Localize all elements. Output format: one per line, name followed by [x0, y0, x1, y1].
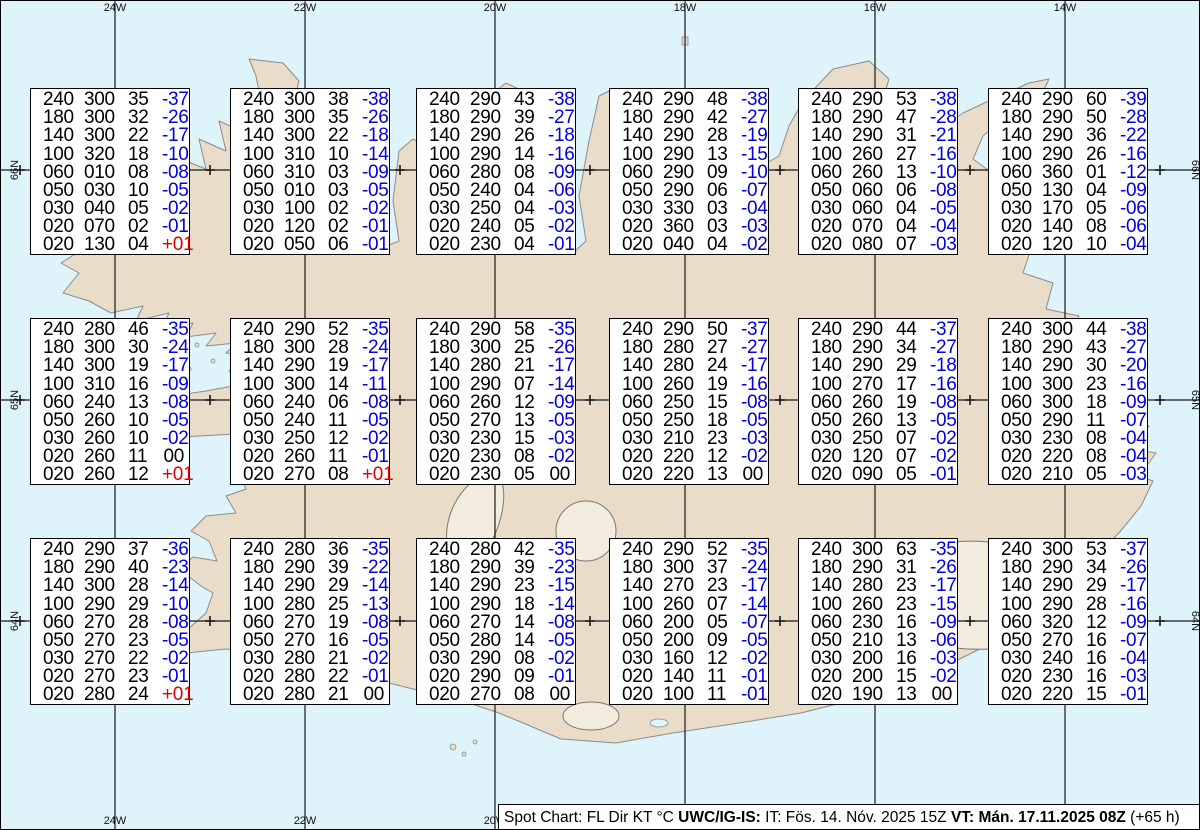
- temp-value: -17: [162, 356, 189, 375]
- temp-value: -15: [741, 145, 768, 164]
- spot-row: 10029026-16: [989, 145, 1147, 163]
- fl-value: 020: [43, 465, 84, 484]
- fl-value: 100: [622, 595, 663, 614]
- spot-row: 05003010-05: [31, 181, 189, 199]
- temp-value: 00: [548, 685, 570, 704]
- temp-value: -02: [741, 235, 768, 254]
- temp-value: -06: [548, 181, 575, 200]
- fl-value: 060: [1001, 163, 1042, 182]
- dir-value: 240: [470, 181, 514, 200]
- dir-value: 230: [470, 465, 514, 484]
- temp-value: 00: [362, 685, 384, 704]
- spot-row: 02024005-02: [417, 217, 575, 235]
- dir-value: 200: [663, 631, 707, 650]
- dir-value: 260: [852, 411, 896, 430]
- dir-value: 270: [852, 375, 896, 394]
- temp-value: +01: [162, 235, 193, 254]
- dir-value: 260: [852, 163, 896, 182]
- spot-row: 05006006-08: [799, 181, 957, 199]
- temp-value: -04: [1120, 235, 1147, 254]
- dir-value: 190: [852, 685, 896, 704]
- spot-row: 03010002-02: [231, 199, 389, 217]
- lat-label-left: 66N: [9, 158, 21, 182]
- spot-row: 05029011-07: [989, 411, 1147, 429]
- spot-row: 02010011-01: [610, 685, 768, 703]
- status-text-segment: IT: Fös. 14. Nóv. 2025 15Z: [761, 809, 951, 827]
- lat-label-right: 66N: [1189, 158, 1200, 182]
- spot-data-box: 24030044-3818029043-2714029030-201003002…: [988, 318, 1148, 485]
- spot-row: 06026013-10: [799, 163, 957, 181]
- spot-row: 14028024-17: [610, 356, 768, 374]
- temp-value: -17: [548, 356, 575, 375]
- kt-value: 10: [328, 145, 362, 164]
- fl-value: 060: [622, 613, 663, 632]
- spot-row: 14029029-18: [799, 356, 957, 374]
- spot-row: 02027023-01: [31, 667, 189, 685]
- fl-value: 050: [811, 631, 852, 650]
- spot-row: 14028021-17: [417, 356, 575, 374]
- spot-row: 03024016-04: [989, 649, 1147, 667]
- lon-label-bottom: 22W: [291, 815, 319, 827]
- fl-value: 050: [622, 411, 663, 430]
- fl-value: 140: [622, 576, 663, 595]
- fl-value: 020: [811, 685, 852, 704]
- fl-value: 050: [43, 411, 84, 430]
- dir-value: 290: [470, 595, 514, 614]
- dir-value: 290: [470, 126, 514, 145]
- fl-value: 050: [43, 181, 84, 200]
- dir-value: 100: [663, 685, 707, 704]
- kt-value: 28: [1086, 595, 1120, 614]
- spot-data-box: 24029052-3518030028-2414029019-171003001…: [230, 318, 390, 485]
- spot-data-box: 24029048-3818029042-2714029028-191002901…: [609, 88, 769, 255]
- spot-row: 18029039-23: [417, 558, 575, 576]
- spot-row: 10026007-14: [610, 595, 768, 613]
- dir-value: 270: [284, 465, 328, 484]
- spot-data-box: 24029050-3718028027-2714028024-171002601…: [609, 318, 769, 485]
- spot-row: 02007002-01: [31, 217, 189, 235]
- spot-data-box: 24028046-3518030030-2414030019-171003101…: [30, 318, 190, 485]
- dir-value: 270: [663, 576, 707, 595]
- fl-value: 050: [1001, 411, 1042, 430]
- spot-data-box: 24030063-3518029031-2614028023-171002602…: [798, 538, 958, 705]
- temp-value: -09: [1120, 613, 1147, 632]
- kt-value: 22: [128, 126, 162, 145]
- temp-value: 00: [548, 465, 570, 484]
- dir-value: 060: [852, 181, 896, 200]
- fl-value: 140: [43, 576, 84, 595]
- kt-value: 07: [896, 235, 930, 254]
- spot-row: 18029043-27: [989, 338, 1147, 356]
- temp-value: -14: [362, 576, 389, 595]
- dir-value: 300: [84, 356, 128, 375]
- fl-value: 100: [429, 595, 470, 614]
- kt-value: 09: [707, 631, 741, 650]
- lon-label-top: 22W: [291, 2, 319, 14]
- kt-value: 08: [514, 163, 548, 182]
- temp-value: -14: [362, 145, 389, 164]
- temp-value: -18: [362, 126, 389, 145]
- spot-row: 02023008-02: [417, 447, 575, 465]
- spot-row: 14029031-21: [799, 126, 957, 144]
- temp-value: -05: [362, 631, 389, 650]
- spot-row: 24030035-37: [31, 90, 189, 108]
- spot-row: 02007004-04: [799, 217, 957, 235]
- spot-row: 14029030-20: [989, 356, 1147, 374]
- dir-value: 260: [84, 465, 128, 484]
- spot-row: 02014011-01: [610, 667, 768, 685]
- fl-value: 050: [1001, 181, 1042, 200]
- spot-row: 14028023-17: [799, 576, 957, 594]
- spot-row: 18030030-24: [31, 338, 189, 356]
- kt-value: 14: [514, 613, 548, 632]
- spot-row: 18029039-22: [231, 558, 389, 576]
- fl-value: 140: [622, 126, 663, 145]
- dir-value: 360: [1042, 163, 1086, 182]
- kt-value: 25: [328, 595, 362, 614]
- spot-row: 06023016-09: [799, 613, 957, 631]
- temp-value: -14: [162, 576, 189, 595]
- kt-value: 23: [1086, 375, 1120, 394]
- spot-row: 24029048-38: [610, 90, 768, 108]
- fl-value: 100: [429, 145, 470, 164]
- dir-value: 290: [84, 595, 128, 614]
- spot-row: 03033003-04: [610, 199, 768, 217]
- temp-value: -03: [930, 235, 957, 254]
- kt-value: 26: [1086, 145, 1120, 164]
- temp-value: -10: [741, 163, 768, 182]
- dir-value: 300: [1042, 375, 1086, 394]
- spot-row: 14029019-17: [231, 356, 389, 374]
- spot-row: 24029044-37: [799, 320, 957, 338]
- temp-value: -08: [162, 163, 189, 182]
- kt-value: 11: [707, 685, 741, 704]
- kt-value: 10: [128, 411, 162, 430]
- dir-value: 280: [284, 685, 328, 704]
- spot-row: 02023016-03: [989, 667, 1147, 685]
- fl-value: 050: [243, 631, 284, 650]
- fl-value: 060: [811, 163, 852, 182]
- spot-row: 18029031-26: [799, 558, 957, 576]
- temp-value: -15: [548, 576, 575, 595]
- kt-value: 13: [707, 465, 741, 484]
- spot-row: 14029023-15: [417, 576, 575, 594]
- temp-value: -03: [1120, 465, 1147, 484]
- temp-value: -17: [741, 576, 768, 595]
- temp-value: -09: [930, 613, 957, 632]
- kt-value: 21: [514, 356, 548, 375]
- dir-value: 280: [470, 631, 514, 650]
- kt-value: 15: [1086, 685, 1120, 704]
- dir-value: 010: [284, 181, 328, 200]
- kt-value: 12: [128, 465, 162, 484]
- kt-value: 27: [896, 145, 930, 164]
- spot-row: 0202802100: [231, 685, 389, 703]
- fl-value: 100: [1001, 145, 1042, 164]
- dir-value: 120: [1042, 235, 1086, 254]
- fl-value: 140: [1001, 356, 1042, 375]
- spot-row: 18029039-27: [417, 108, 575, 126]
- spot-row: 05024011-05: [231, 411, 389, 429]
- temp-value: -16: [548, 145, 575, 164]
- spot-row: 06025015-08: [610, 393, 768, 411]
- kt-value: 16: [1086, 631, 1120, 650]
- temp-value: -01: [548, 235, 575, 254]
- kt-value: 01: [1086, 163, 1120, 182]
- kt-value: 19: [896, 393, 930, 412]
- dir-value: 300: [1042, 393, 1086, 412]
- fl-value: 050: [43, 631, 84, 650]
- spot-row: 02026012+01: [31, 465, 189, 483]
- spot-row: 06026019-08: [799, 393, 957, 411]
- spot-row: 10032018-10: [31, 145, 189, 163]
- fl-value: 060: [243, 613, 284, 632]
- spot-row: 05029006-07: [610, 181, 768, 199]
- spot-row: 18030032-26: [31, 108, 189, 126]
- fl-value: 100: [622, 145, 663, 164]
- spot-row: 18029034-27: [799, 338, 957, 356]
- kt-value: 16: [128, 375, 162, 394]
- temp-value: -08: [362, 393, 389, 412]
- kt-value: 04: [128, 235, 162, 254]
- dir-value: 210: [1042, 465, 1086, 484]
- fl-value: 100: [429, 375, 470, 394]
- spot-row: 06031003-09: [231, 163, 389, 181]
- spot-row: 02012010-04: [989, 235, 1147, 253]
- dir-value: 300: [84, 576, 128, 595]
- spot-row: 06028008-09: [417, 163, 575, 181]
- kt-value: 19: [128, 356, 162, 375]
- fl-value: 140: [1001, 576, 1042, 595]
- spot-data-box: 24030038-3818030035-2614030022-181003101…: [230, 88, 390, 255]
- fl-value: 050: [429, 181, 470, 200]
- dir-value: 270: [84, 613, 128, 632]
- fl-value: 100: [243, 595, 284, 614]
- dir-value: 010: [84, 163, 128, 182]
- temp-value: -18: [930, 356, 957, 375]
- spot-row: 18029047-28: [799, 108, 957, 126]
- spot-row: 06027019-08: [231, 613, 389, 631]
- kt-value: 11: [1086, 411, 1120, 430]
- fl-value: 050: [429, 411, 470, 430]
- temp-value: -01: [741, 685, 768, 704]
- kt-value: 04: [707, 235, 741, 254]
- kt-value: 04: [514, 181, 548, 200]
- spot-row: 0202201300: [610, 465, 768, 483]
- fl-value: 020: [622, 685, 663, 704]
- dir-value: 310: [84, 375, 128, 394]
- spot-row: 0202601100: [31, 447, 189, 465]
- kt-value: 14: [514, 631, 548, 650]
- spot-row: 14030019-17: [31, 356, 189, 374]
- spot-data-box: 24029037-3618029040-2314030028-141002902…: [30, 538, 190, 705]
- spot-row: 02021005-03: [989, 465, 1147, 483]
- kt-value: 14: [514, 145, 548, 164]
- fl-value: 100: [811, 375, 852, 394]
- dir-value: 270: [470, 613, 514, 632]
- temp-value: -17: [930, 576, 957, 595]
- spot-row: 02004004-02: [610, 235, 768, 253]
- temp-value: -01: [362, 235, 389, 254]
- fl-value: 020: [429, 235, 470, 254]
- dir-value: 260: [852, 393, 896, 412]
- temp-value: -09: [362, 163, 389, 182]
- spot-row: 18030028-24: [231, 338, 389, 356]
- kt-value: 29: [896, 356, 930, 375]
- kt-value: 05: [1086, 465, 1120, 484]
- temp-value: -08: [930, 393, 957, 412]
- spot-row: 03028021-02: [231, 649, 389, 667]
- fl-value: 020: [243, 465, 284, 484]
- dir-value: 220: [1042, 685, 1086, 704]
- fl-value: 060: [43, 393, 84, 412]
- lat-label-left: 64N: [9, 609, 21, 633]
- spot-row: 02020015-02: [799, 667, 957, 685]
- spot-row: 14029026-18: [417, 126, 575, 144]
- dir-value: 260: [84, 411, 128, 430]
- spot-row: 05026013-05: [799, 411, 957, 429]
- kt-value: 14: [328, 375, 362, 394]
- spot-row: 24029050-37: [610, 320, 768, 338]
- spot-row: 18030035-26: [231, 108, 389, 126]
- kt-value: 18: [514, 595, 548, 614]
- temp-value: -20: [1120, 356, 1147, 375]
- kt-value: 05: [896, 465, 930, 484]
- fl-value: 060: [811, 393, 852, 412]
- spot-row: 02023004-01: [417, 235, 575, 253]
- dir-value: 090: [852, 465, 896, 484]
- kt-value: 23: [896, 595, 930, 614]
- lon-label-top: 20W: [481, 2, 509, 14]
- kt-value: 19: [328, 613, 362, 632]
- spot-row: 14029028-19: [610, 126, 768, 144]
- spot-row: 03006004-05: [799, 199, 957, 217]
- fl-value: 020: [429, 685, 470, 704]
- kt-value: 29: [328, 576, 362, 595]
- temp-value: +01: [162, 685, 193, 704]
- spot-row: 06036001-12: [989, 163, 1147, 181]
- spot-data-box: 24029060-3918029050-2814029036-221002902…: [988, 88, 1148, 255]
- temp-value: -12: [1120, 163, 1147, 182]
- kt-value: 19: [328, 356, 362, 375]
- dir-value: 040: [663, 235, 707, 254]
- status-bar: Spot Chart: FL Dir KT °C UWC/IG-IS: IT: …: [498, 804, 1200, 830]
- spot-row: 03023008-04: [989, 429, 1147, 447]
- fl-value: 100: [43, 375, 84, 394]
- dir-value: 290: [284, 576, 328, 595]
- fl-value: 140: [429, 126, 470, 145]
- kt-value: 12: [1086, 613, 1120, 632]
- fl-value: 020: [811, 465, 852, 484]
- spot-row: 24029053-38: [799, 90, 957, 108]
- dir-value: 300: [84, 126, 128, 145]
- spot-row: 14030022-18: [231, 126, 389, 144]
- status-text-segment: VT: Mán. 17.11.2025 08Z: [951, 809, 1126, 827]
- dir-value: 290: [852, 356, 896, 375]
- spot-data-box: 24028042-3518029039-2314029023-151002901…: [416, 538, 576, 705]
- spot-row: 18030025-26: [417, 338, 575, 356]
- kt-value: 31: [896, 126, 930, 145]
- status-text-segment: Spot Chart: FL Dir KT °C: [504, 809, 678, 827]
- kt-value: 23: [896, 576, 930, 595]
- kt-value: 18: [128, 145, 162, 164]
- kt-value: 13: [896, 631, 930, 650]
- spot-row: 03004005-02: [31, 199, 189, 217]
- vestmannaeyjar-island: [473, 740, 477, 744]
- spot-row: 02027008+01: [231, 465, 389, 483]
- kt-value: 06: [896, 181, 930, 200]
- spot-row: 03016012-02: [610, 649, 768, 667]
- kt-value: 21: [328, 685, 362, 704]
- temp-value: -13: [362, 595, 389, 614]
- spot-row: 0201901300: [799, 685, 957, 703]
- spot-row: 02022012-02: [610, 447, 768, 465]
- temp-value: -07: [1120, 631, 1147, 650]
- spot-row: 18030037-24: [610, 558, 768, 576]
- temp-value: -14: [548, 595, 575, 614]
- temp-value: -08: [548, 613, 575, 632]
- fl-value: 020: [622, 235, 663, 254]
- dir-value: 220: [663, 465, 707, 484]
- spot-data-box: 24030053-3718029034-2614029029-171002902…: [988, 538, 1148, 705]
- temp-value: -09: [1120, 393, 1147, 412]
- dir-value: 290: [663, 163, 707, 182]
- kt-value: 07: [707, 595, 741, 614]
- spot-data-box: 24029053-3818029047-2814029031-211002602…: [798, 88, 958, 255]
- temp-value: -17: [362, 356, 389, 375]
- spot-row: 0202700800: [417, 685, 575, 703]
- spot-row: 10030023-16: [989, 375, 1147, 393]
- spot-row: 18029034-26: [989, 558, 1147, 576]
- dir-value: 290: [663, 126, 707, 145]
- temp-value: -16: [1120, 145, 1147, 164]
- spot-row: 10026023-15: [799, 595, 957, 613]
- spot-row: 10031010-14: [231, 145, 389, 163]
- spot-row: 02012007-02: [799, 447, 957, 465]
- spot-row: 03025004-03: [417, 199, 575, 217]
- kt-value: 28: [707, 126, 741, 145]
- fl-value: 140: [811, 356, 852, 375]
- dir-value: 320: [84, 145, 128, 164]
- spot-row: 05020009-05: [610, 631, 768, 649]
- fl-value: 050: [811, 181, 852, 200]
- spot-row: 05027016-05: [231, 631, 389, 649]
- myrdalsjokull-glacier: [563, 702, 619, 730]
- kt-value: 06: [328, 235, 362, 254]
- spot-row: 10026027-16: [799, 145, 957, 163]
- spot-row: 05028014-05: [417, 631, 575, 649]
- lon-label-top: 18W: [671, 2, 699, 14]
- temp-value: -05: [362, 411, 389, 430]
- fl-value: 060: [811, 613, 852, 632]
- temp-value: -07: [1120, 411, 1147, 430]
- fl-value: 050: [243, 411, 284, 430]
- dir-value: 260: [852, 595, 896, 614]
- spot-row: 10026019-16: [610, 375, 768, 393]
- spot-row: 02028022-01: [231, 667, 389, 685]
- spot-row: 18028027-27: [610, 338, 768, 356]
- temp-value: -08: [162, 613, 189, 632]
- spot-row: 06030018-09: [989, 393, 1147, 411]
- dir-value: 200: [663, 613, 707, 632]
- spot-row: 02029009-01: [417, 667, 575, 685]
- kt-value: 28: [128, 576, 162, 595]
- fl-value: 140: [243, 126, 284, 145]
- spot-row: 03020016-03: [799, 649, 957, 667]
- kt-value: 08: [328, 465, 362, 484]
- temp-value: -14: [741, 595, 768, 614]
- temp-value: -05: [162, 181, 189, 200]
